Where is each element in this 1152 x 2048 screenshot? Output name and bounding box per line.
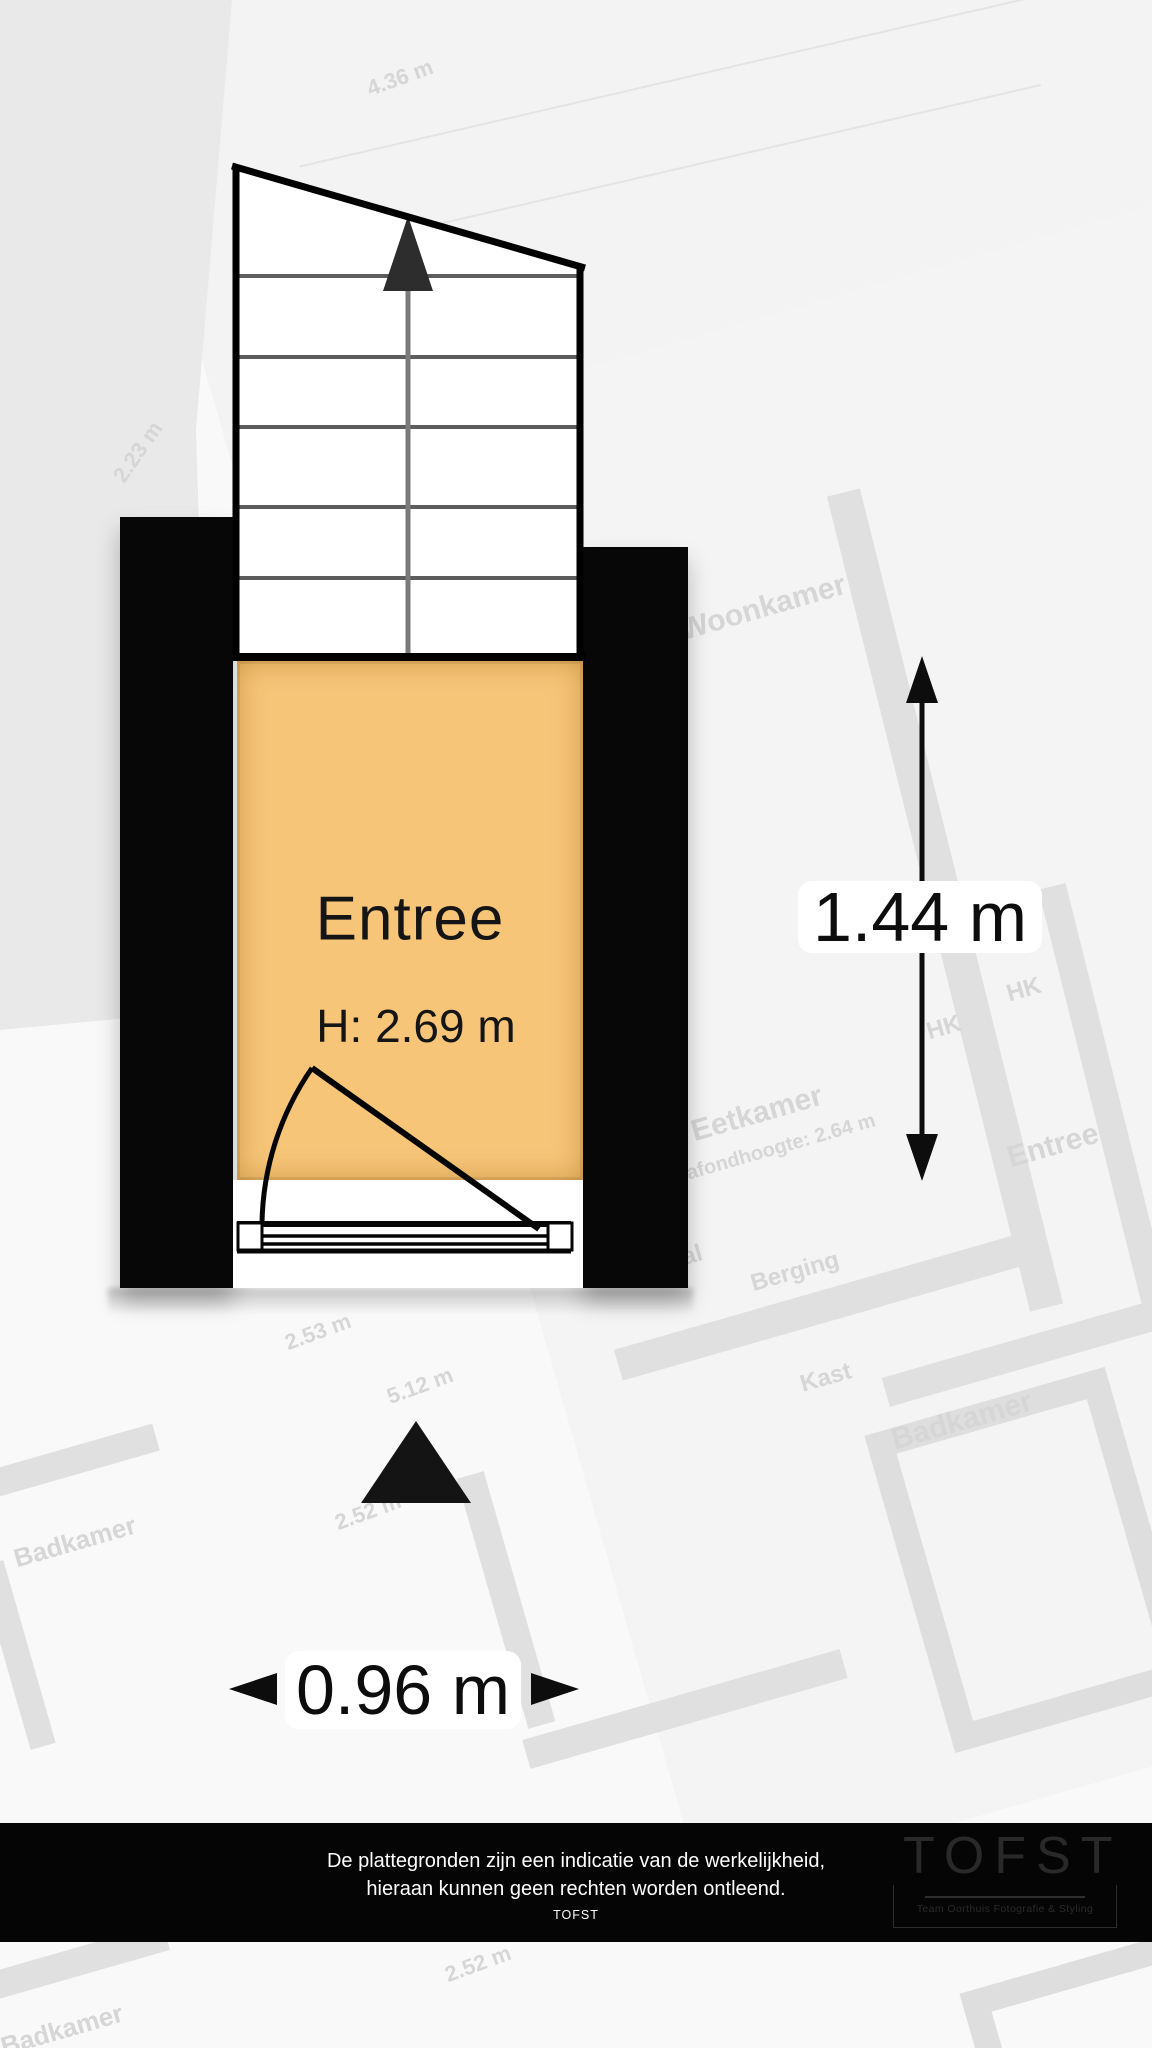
plan-drop-shadow	[108, 1288, 693, 1314]
background-room-label: Badkamer	[0, 1998, 127, 2048]
tofst-logo-subtitle: Team Oorthuis Fotografie & Styling	[893, 1903, 1117, 1915]
arrow-left-icon	[229, 1673, 277, 1705]
north-arrow-icon	[361, 1421, 471, 1503]
background-dimension-label: 2.52 m	[441, 1940, 514, 1988]
background-room-label: Badkamer	[10, 1510, 139, 1574]
left-wall	[120, 517, 233, 1288]
entrance-recess	[233, 1180, 583, 1288]
floorplan-page: WoonkamerEetkamerPlafondhoogte: 2.64 mHK…	[0, 0, 1152, 2048]
background-wall	[0, 1424, 160, 1509]
background-dimension-label: 2.53 m	[281, 1308, 354, 1356]
horizontal-dimension-label: 0.96 m	[296, 1650, 510, 1730]
room-name-label: Entree	[316, 884, 505, 955]
background-wall	[0, 1560, 56, 1750]
background-dimension-label: 5.12 m	[383, 1362, 456, 1410]
right-wall	[583, 547, 688, 1288]
tofst-logo-title: TOFST	[893, 1828, 1117, 1885]
vertical-dimension-label: 1.44 m	[813, 877, 1027, 957]
tofst-logo-divider	[925, 1896, 1085, 1898]
background-dimension-label: 2.52 m	[331, 1488, 404, 1536]
background-room-outline	[959, 1933, 1152, 2048]
ceiling-height-label: H: 2.69 m	[316, 999, 515, 1053]
